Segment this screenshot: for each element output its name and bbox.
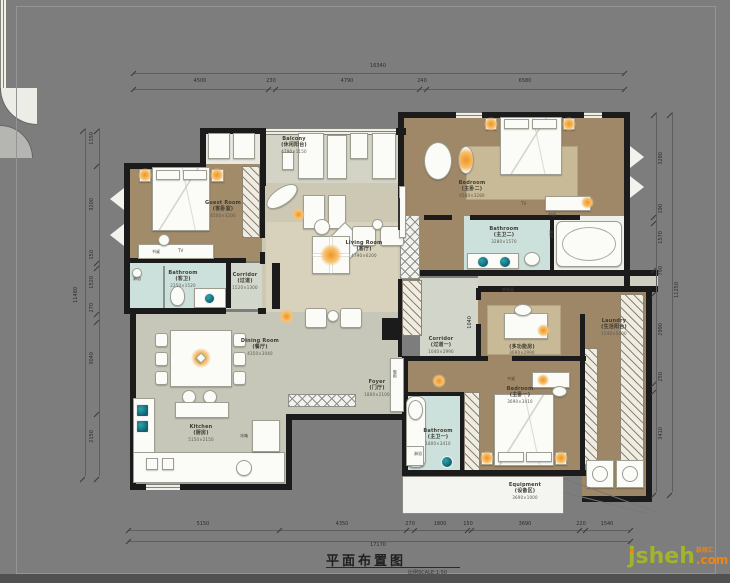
wall-lamp-glow	[432, 374, 446, 388]
annotation-fridge: 冰箱	[240, 434, 248, 438]
bay-window-icon	[630, 176, 644, 198]
kitchen-island	[175, 402, 229, 418]
dim-bottom-seg: 1800	[434, 522, 447, 527]
lounge-chair	[305, 308, 327, 328]
dining-chair	[233, 371, 246, 385]
tub-basin	[562, 227, 616, 261]
lamp-glow	[484, 117, 498, 131]
closet-cabinet	[208, 133, 230, 159]
washer-drum	[622, 466, 638, 482]
watermark-brand: jsheh	[628, 548, 695, 566]
bedroom2-window-right	[0, 0, 6, 22]
wall	[580, 358, 585, 472]
dim-left-seg: 3040	[90, 352, 95, 365]
lamp-glow	[292, 208, 305, 221]
lamp-glow	[480, 451, 494, 465]
label-bath2: Bathroom(主卫二)3280×1570	[478, 226, 530, 244]
watermark-dot	[630, 549, 634, 553]
label-guest-bath: Bathroom(客卫)2250×1520	[158, 270, 208, 288]
wall	[286, 414, 408, 420]
wall	[476, 288, 481, 300]
annotation-shower: 淋浴	[414, 452, 422, 456]
washer-drum	[592, 466, 608, 482]
ottoman	[458, 146, 474, 174]
dim-right-seg: 3280	[659, 152, 664, 165]
dim-top-seg: 240	[417, 79, 427, 84]
annotation-tv: TV	[178, 249, 183, 253]
corridor1-wardrobe	[402, 280, 422, 336]
toilet	[524, 252, 540, 266]
bay-window-icon	[110, 188, 124, 210]
bay-window-icon	[630, 146, 644, 168]
dim-right-total: 11250	[675, 282, 680, 298]
kitchen-door-gap	[146, 484, 180, 490]
title-underline	[326, 567, 460, 568]
lamp-glow	[210, 168, 224, 182]
dim-right-seg: 2990	[659, 323, 664, 336]
label-balcony: Balcony(休闲阳台)4790×1150	[268, 136, 320, 154]
toilet	[170, 286, 185, 306]
pillow	[532, 119, 557, 129]
lamp-glow	[562, 117, 576, 131]
cooktop	[236, 460, 252, 476]
washer	[616, 460, 644, 488]
guest-window-left	[0, 44, 6, 66]
dim-bottom-seg: 270	[405, 522, 415, 527]
dim-left-seg: 1150	[90, 132, 95, 145]
vanity	[467, 253, 519, 269]
wall	[260, 128, 266, 186]
dim-right-seg: 3410	[659, 427, 664, 440]
dim-left-seg: 2150	[90, 430, 95, 443]
inner-dim-corridor: 1040	[468, 316, 473, 329]
dim-bottom-seg: 150	[463, 522, 473, 527]
balcony-cabinet	[282, 152, 294, 170]
counter-appliance	[146, 458, 158, 470]
wall	[580, 288, 585, 292]
dim-bottom-seg: 5150	[197, 522, 210, 527]
dim-bottom-seg: 220	[576, 522, 586, 527]
dim-line	[99, 128, 100, 476]
dim-line	[133, 73, 625, 74]
dining-chair	[155, 352, 168, 366]
pillow	[183, 170, 207, 180]
label-multi: (多功能房)3690×2990	[494, 344, 550, 355]
annotation-shower: 淋浴	[133, 277, 141, 281]
label-bath1: Bathroom(主卫一)1800×3410	[414, 428, 462, 446]
pillow	[526, 452, 552, 462]
shower-tray	[406, 446, 424, 466]
balcony-cabinet	[372, 133, 396, 179]
side-table	[327, 310, 339, 322]
dim-left-seg: 1520	[90, 276, 95, 289]
label-corridor1: Corridor(过道一)1040×2990	[416, 336, 466, 354]
label-dining: Dining Room(餐厅)4350×3040	[232, 338, 288, 356]
dim-left-seg: 270	[90, 303, 95, 313]
bedroom1-wardrobe	[464, 392, 480, 472]
lamp-glow	[537, 374, 549, 386]
dim-left-seg: 3200	[90, 198, 95, 211]
dim-bottom-seg: 3690	[519, 522, 532, 527]
wall	[260, 186, 265, 238]
dim-bottom-seg: 1540	[601, 522, 614, 527]
lamp-glow	[581, 196, 594, 209]
dim-right-seg: 250	[659, 372, 664, 382]
pillow	[504, 119, 529, 129]
label-bedroom1: Bedroom(主卧一)3690×3410	[494, 386, 546, 404]
annotation-painting: 装饰画	[502, 288, 514, 292]
desk-chair	[514, 304, 532, 316]
annotation-tv: TV	[521, 202, 526, 206]
wall	[398, 279, 402, 357]
wall	[200, 128, 206, 169]
toilet	[408, 400, 423, 420]
lounge-chair	[340, 308, 362, 328]
label-laundry: Laundry(生活阳台)1540×5000	[588, 318, 640, 336]
annotation-desk: 书桌	[152, 250, 160, 254]
wall	[272, 263, 280, 309]
watermark-logo: jsheh 装修汇 .com	[628, 548, 728, 566]
tv	[398, 198, 400, 230]
bedroom2-window-top	[456, 112, 482, 118]
dim-top-seg: 230	[266, 79, 276, 84]
dim-top-seg: 6580	[519, 79, 532, 84]
bedroom2-window-top2	[584, 112, 602, 118]
annotation-shower: 淋浴	[549, 230, 553, 238]
annotation-desk: 书桌	[507, 377, 515, 381]
dim-line	[672, 112, 673, 492]
dim-line	[133, 89, 625, 90]
dim-top-seg: 4790	[341, 79, 354, 84]
wall	[124, 308, 226, 314]
side-table	[372, 219, 383, 230]
label-foyer: Foyer(门厅)1800×2100	[356, 379, 398, 397]
sink-bowl	[499, 256, 511, 268]
dining-chair	[155, 371, 168, 385]
dim-line	[128, 530, 630, 531]
wall	[402, 356, 488, 361]
lamp-glow	[554, 451, 568, 465]
bay-window-icon	[110, 224, 124, 246]
wall	[402, 470, 586, 476]
wall	[512, 356, 586, 361]
wall	[470, 215, 580, 220]
tv-cabinet	[399, 186, 406, 238]
dim-left-total: 11480	[74, 287, 79, 303]
dim-bottom-seg: 4350	[336, 522, 349, 527]
desk-chair	[552, 386, 567, 397]
pillow	[156, 170, 180, 180]
guest-desk	[138, 244, 214, 259]
dim-top-total: 16340	[370, 64, 386, 69]
dim-bottom-total: 17170	[370, 543, 386, 548]
dim-top-seg: 4500	[194, 79, 207, 84]
guest-window-left2	[0, 66, 6, 88]
bedroom2-window-right2	[0, 22, 6, 44]
kitchen-sink	[136, 404, 149, 417]
label-living: Living Room(客厅)4790×6200	[336, 240, 392, 258]
dim-right-seg: 190	[659, 204, 664, 214]
annotation-shoe-cabinet: 鞋柜	[393, 370, 397, 378]
fridge	[252, 420, 280, 452]
armchair	[424, 142, 452, 180]
closet-cabinet	[233, 133, 255, 159]
ottoman	[314, 219, 330, 235]
dim-line	[85, 128, 86, 476]
sink-bowl	[477, 256, 489, 268]
label-corridor: Corridor(过道)1520×1300	[222, 272, 268, 290]
wall	[124, 163, 130, 313]
laundry-closet-left	[584, 348, 598, 466]
scale-note: 比例SCALE:1:50	[408, 569, 447, 576]
dining-bench	[288, 394, 356, 407]
pillow	[498, 452, 524, 462]
washer	[586, 460, 614, 488]
wall	[550, 216, 554, 270]
balcony-cabinet	[327, 135, 347, 179]
label-guest-room: Guest Room(客卧室)4500×3200	[195, 200, 251, 218]
sink-bowl	[204, 293, 215, 304]
wall	[424, 215, 452, 220]
wall	[580, 314, 585, 358]
label-equipment: Equipment(设备区)3690×1000	[496, 482, 554, 500]
dim-right-seg: 1570	[659, 231, 664, 244]
dim-line	[656, 112, 657, 492]
lamp-glow	[138, 168, 152, 182]
kitchen-sink	[136, 420, 149, 433]
dim-right-seg: 790	[659, 266, 664, 276]
label-kitchen: Kitchen(厨房)5150×2150	[176, 424, 226, 442]
balcony-cabinet	[350, 133, 368, 159]
desk-chair	[158, 234, 170, 246]
wall	[258, 308, 266, 314]
wall	[420, 270, 658, 276]
label-bedroom2: Bedroom(主卧二)6580×3280	[446, 180, 498, 198]
sink-bowl	[441, 456, 453, 468]
counter-appliance	[162, 458, 174, 470]
wall	[476, 324, 481, 358]
bathtub	[556, 221, 622, 267]
lamp-glow	[537, 324, 550, 337]
bottom-band	[0, 574, 730, 583]
floor-plan-canvas: Guest Room(客卧室)4500×3200 Bathroom(客卫)225…	[0, 0, 730, 583]
lamp-glow	[279, 309, 294, 324]
dim-left-seg: 150	[90, 250, 95, 260]
watermark-tld: .com	[696, 554, 728, 566]
wall	[260, 252, 265, 264]
dining-chair	[155, 333, 168, 347]
wall	[382, 318, 398, 340]
wall	[286, 414, 292, 490]
wall	[624, 112, 630, 292]
annotation-desk: 书桌	[548, 213, 556, 217]
